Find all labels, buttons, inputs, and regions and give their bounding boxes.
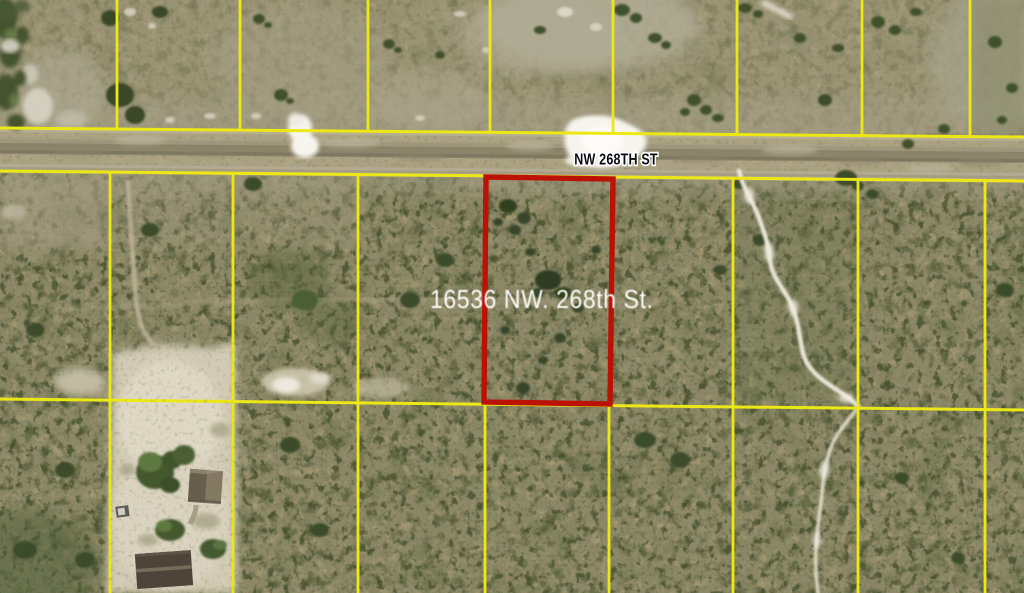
svg-text:16536 NW. 268th St.: 16536 NW. 268th St. — [430, 286, 654, 315]
svg-text:NW 268TH ST: NW 268TH ST — [574, 151, 657, 169]
